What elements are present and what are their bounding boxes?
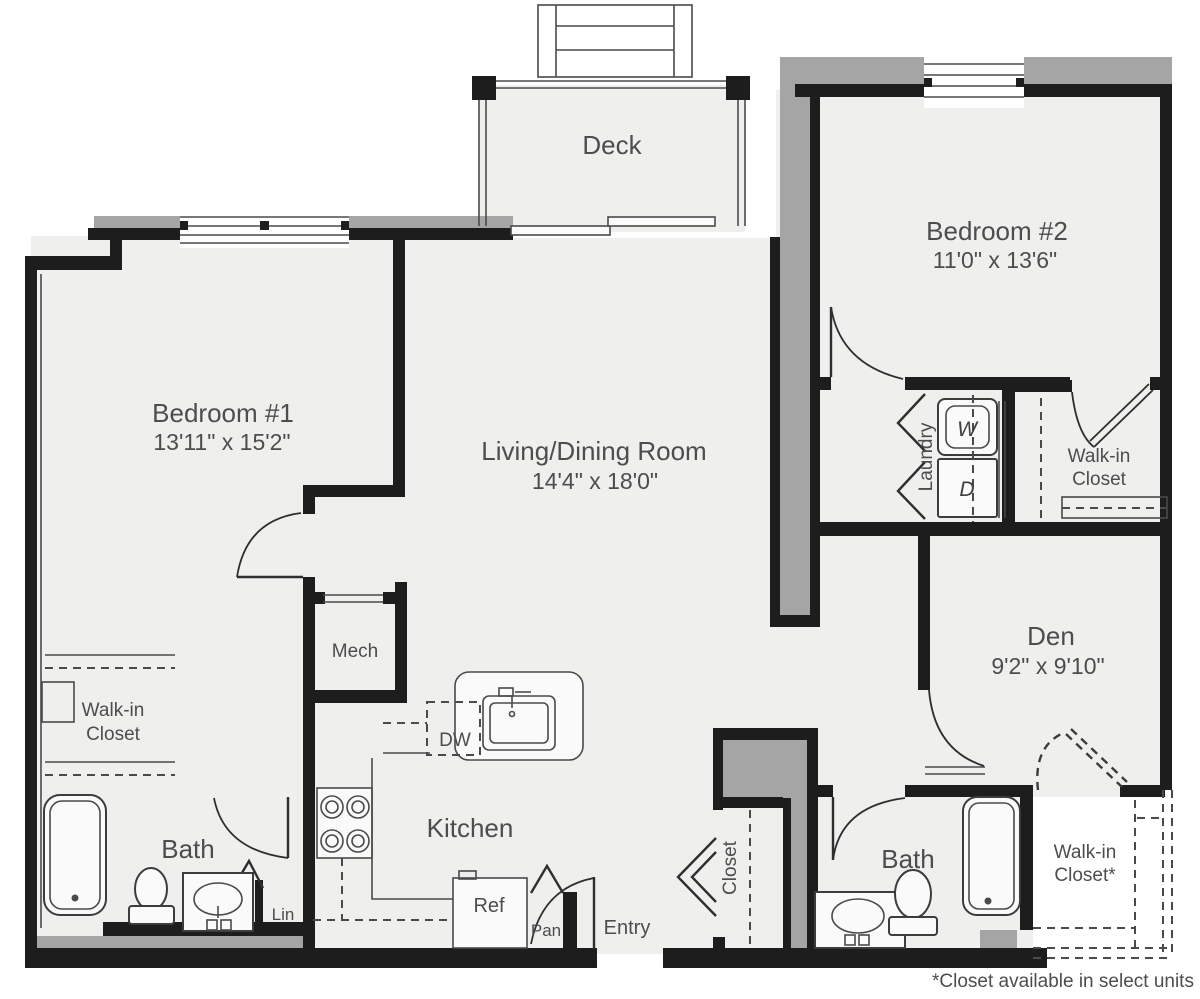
washer-label: W xyxy=(957,418,979,441)
refrigerator-label: Ref xyxy=(473,895,505,917)
bedroom2-label: Bedroom #2 xyxy=(926,216,1068,246)
vanity xyxy=(183,873,253,931)
toilet-icon xyxy=(895,870,931,918)
laundry-appliances xyxy=(938,395,1005,522)
living-room-dims: 14'4" x 18'0" xyxy=(532,468,658,494)
bedroom1-window xyxy=(180,211,349,248)
toilet-icon xyxy=(135,868,167,910)
bedroom2-dims: 11'0" x 13'6" xyxy=(933,247,1057,273)
entry-closet-label: Closet xyxy=(720,840,741,895)
mech-label: Mech xyxy=(332,641,378,662)
floor-plan-drawing: Deck Bedroom #1 13'11" x 15'2" Bedroom #… xyxy=(0,0,1200,999)
kitchen-label: Kitchen xyxy=(427,813,514,843)
deck-label: Deck xyxy=(582,130,642,160)
wic-optional-label-2: Closet* xyxy=(1054,865,1116,886)
den-label: Den xyxy=(1027,621,1075,651)
deck-stairs xyxy=(538,5,692,77)
sliding-door-panel xyxy=(608,217,715,226)
deck-post-left xyxy=(472,76,496,100)
bath1-label: Bath xyxy=(161,834,215,864)
linen-label: Lin xyxy=(272,905,295,924)
dryer-label: D xyxy=(959,478,974,501)
drain xyxy=(72,895,79,902)
pantry-label: Pan xyxy=(531,921,561,940)
dishwasher-label: DW xyxy=(439,730,471,751)
floor-plan-page: Deck Bedroom #1 13'11" x 15'2" Bedroom #… xyxy=(0,0,1200,999)
wic-left-label-1: Walk-in xyxy=(82,700,145,721)
laundry-label: Laundry xyxy=(916,422,937,491)
wic-right-label-2: Closet xyxy=(1072,469,1127,490)
bathtub xyxy=(963,797,1020,915)
den-dims: 9'2" x 9'10" xyxy=(991,653,1104,679)
bedroom2-window xyxy=(924,56,1024,108)
entry-label: Entry xyxy=(604,917,651,939)
bath2-label: Bath xyxy=(881,844,935,874)
sliding-door-panel xyxy=(511,226,610,235)
drain xyxy=(985,898,992,905)
wic-optional-label-1: Walk-in xyxy=(1054,842,1117,863)
kitchen-sink xyxy=(483,696,555,750)
wic-right-label-1: Walk-in xyxy=(1068,446,1131,467)
living-room-label: Living/Dining Room xyxy=(481,436,706,466)
wic-left-label-2: Closet xyxy=(86,724,141,745)
bedroom1-label: Bedroom #1 xyxy=(152,398,294,428)
bedroom1-dims: 13'11" x 15'2" xyxy=(153,429,290,455)
footnote: *Closet available in select units xyxy=(932,971,1194,992)
deck-post-right xyxy=(726,76,750,100)
